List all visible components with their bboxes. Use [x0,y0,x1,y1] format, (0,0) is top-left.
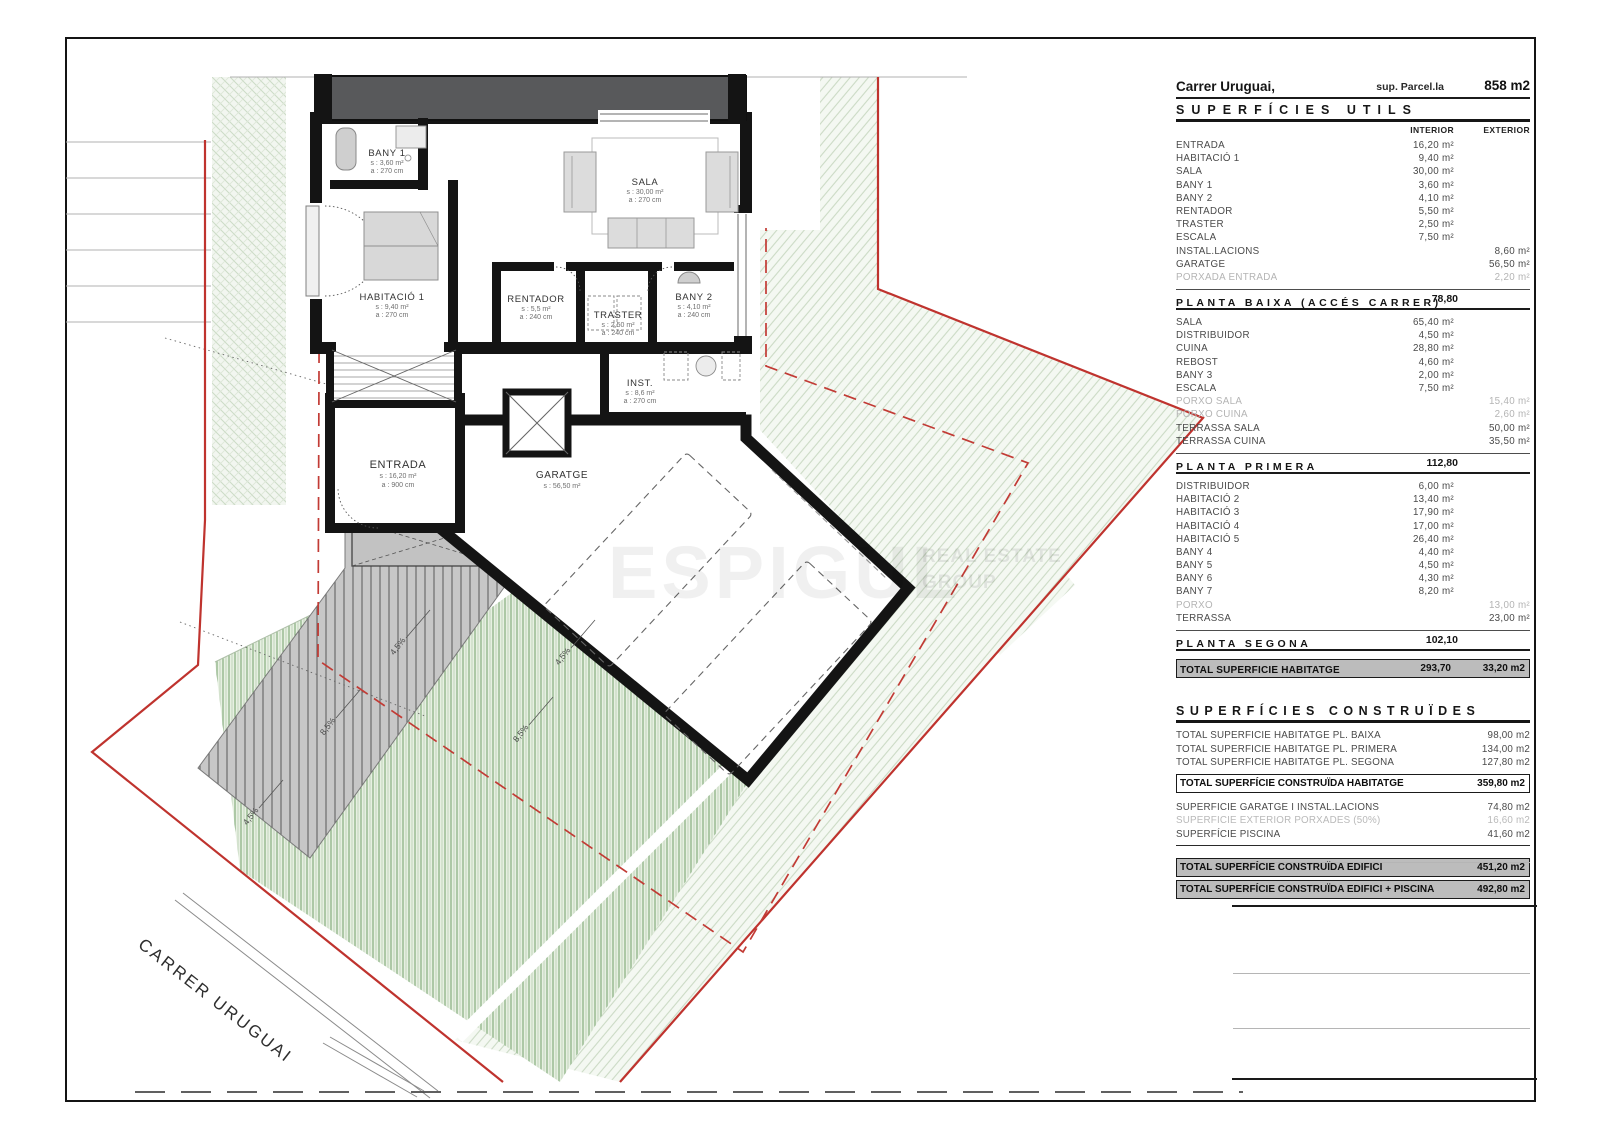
row-label: TOTAL SUPERFICIE HABITATGE PL. SEGONA [1176,757,1394,768]
row-interior-value: 17,90 m² [1413,506,1454,519]
row-exterior-value: 23,00 m² [1489,612,1530,625]
table-row: SUPERFÍCIE PISCINA41,60 m2 [1176,828,1530,842]
total-value: 492,80 m2 [1477,882,1525,897]
total-exterior: 33,20 m2 [1483,661,1525,676]
planta-subtotal-bar: PLANTA SEGONA102,10 [1176,630,1530,651]
row-label: PORXO [1176,599,1213,612]
table-row: SALA30,00 m² [1176,165,1530,178]
planta-value: 112,80 [1426,457,1458,469]
row-label: HABITACIÓ 3 [1176,506,1240,519]
row-interior-value: 9,40 m² [1419,152,1454,165]
construides-extra-rows: SUPERFICIE GARATGE I INSTAL.LACIONS74,80… [1176,801,1530,842]
unit [722,352,740,380]
room-label: BANY 2 [675,292,712,303]
row-label: REBOST [1176,356,1218,369]
table-row: TERRASSA23,00 m² [1176,612,1530,625]
row-label: BANY 7 [1176,585,1212,598]
row-interior-value: 5,50 m² [1419,205,1454,218]
table-row: CUINA28,80 m² [1176,342,1530,355]
row-interior-value: 4,10 m² [1419,192,1454,205]
row-value: 41,60 m2 [1488,828,1530,842]
row-interior-value: 30,00 m² [1413,165,1454,178]
table-row: BANY 44,40 m² [1176,546,1530,559]
total-habitatge-bar: TOTAL SUPERFICIE HABITATGE 293,70 33,20 … [1176,659,1530,678]
parcel-area-value: 858 m2 [1484,78,1530,93]
table-row: SALA65,40 m² [1176,316,1530,329]
total-label: TOTAL SUPERFICIE HABITATGE [1180,665,1340,676]
room-area: s : 2,50 m² [601,322,635,329]
table-row: BANY 32,00 m² [1176,369,1530,382]
planta-label: PLANTA BAIXA (ACCÉS CARRER) [1176,297,1442,309]
room-area: s : 16,20 m² [380,473,418,480]
section-title-utils: SUPERFÍCIES UTILS [1176,99,1530,122]
row-exterior-value: 13,00 m² [1489,599,1530,612]
row-label: BANY 2 [1176,192,1212,205]
watermark-brand: ESPIGUL [608,531,961,614]
row-interior-value: 16,20 m² [1413,139,1454,152]
row-label: CUINA [1176,342,1208,355]
room-height: a : 270 cm [371,168,404,175]
table-row: HABITACIÓ 317,90 m² [1176,506,1530,519]
ruled-line [1233,1028,1530,1029]
row-label: PORXADA ENTRADA [1176,271,1277,284]
table-row: INSTAL.LACIONS8,60 m² [1176,245,1530,258]
table-row: RENTADOR5,50 m² [1176,205,1530,218]
row-interior-value: 26,40 m² [1413,533,1454,546]
column-headers: INTERIOR EXTERIOR [1176,125,1530,139]
room-area: s : 3,60 m² [370,160,404,167]
row-interior-value: 4,50 m² [1419,559,1454,572]
row-value: 134,00 m2 [1482,743,1530,757]
row-label: BANY 5 [1176,559,1212,572]
table-row: GARATGE56,50 m² [1176,258,1530,271]
row-value: 127,80 m2 [1482,756,1530,770]
row-interior-value: 4,50 m² [1419,329,1454,342]
row-label: SUPERFÍCIE PISCINA [1176,829,1280,840]
room-area: s : 5,5 m² [521,306,551,313]
total-construida-habitatge: TOTAL SUPERFÍCIE CONSTRUÏDA HABITATGE 35… [1176,774,1530,793]
sink [396,126,426,148]
row-label: SALA [1176,165,1202,178]
row-interior-value: 65,40 m² [1413,316,1454,329]
planta-label: PLANTA PRIMERA [1176,461,1318,473]
row-interior-value: 28,80 m² [1413,342,1454,355]
room-label: BANY 1 [368,148,405,159]
row-label: PORXO SALA [1176,395,1242,408]
total-label: TOTAL SUPERFÍCIE CONSTRUÏDA EDIFICI + PI… [1180,884,1434,895]
table-row: BANY 64,30 m² [1176,572,1530,585]
row-label: TERRASSA CUINA [1176,435,1266,448]
row-label: BANY 4 [1176,546,1212,559]
ruled-line [1232,1078,1537,1080]
room-label: SALA [632,177,659,188]
table-row: BANY 54,50 m² [1176,559,1530,572]
planta-label: PLANTA SEGONA [1176,638,1311,650]
row-interior-value: 2,50 m² [1419,218,1454,231]
row-exterior-value: 56,50 m² [1489,258,1530,271]
planta-value: 78,80 [1432,293,1458,305]
utils-rows: ENTRADA16,20 m²HABITACIÓ 19,40 m²SALA30,… [1176,139,1530,651]
shaft [506,392,568,454]
row-label: BANY 3 [1176,369,1212,382]
row-exterior-value: 50,00 m² [1489,422,1530,435]
watermark-tagline: GROUP [922,572,997,593]
row-label: RENTADOR [1176,205,1233,218]
table-row: ESCALA7,50 m² [1176,382,1530,395]
row-label: TRASTER [1176,218,1224,231]
table-row: DISTRIBUIDOR6,00 m² [1176,480,1530,493]
row-label: SUPERFICIE EXTERIOR PORXADES (50%) [1176,815,1380,826]
row-interior-value: 6,00 m² [1419,480,1454,493]
row-value: 74,80 m2 [1488,801,1530,815]
ruled-line [1233,862,1530,863]
row-value: 16,60 m2 [1488,814,1530,828]
room-area: s : 30,00 m² [627,189,665,196]
grand-total-bar: TOTAL SUPERFÍCIE CONSTRUÏDA EDIFICI + PI… [1176,880,1530,899]
table-row: TERRASSA SALA50,00 m² [1176,422,1530,435]
table-row: HABITACIÓ 213,40 m² [1176,493,1530,506]
table-row: TOTAL SUPERFICIE HABITATGE PL. SEGONA127… [1176,756,1530,770]
row-label: TOTAL SUPERFICIE HABITATGE PL. BAIXA [1176,730,1381,741]
total-label: TOTAL SUPERFÍCIE CONSTRUÏDA HABITATGE [1180,778,1404,789]
table-row: PORXO SALA15,40 m² [1176,395,1530,408]
row-label: ENTRADA [1176,139,1225,152]
room-label: HABITACIÓ 1 [359,292,424,303]
construides-section: SUPERFÍCIES CONSTRUÏDES TOTAL SUPERFICIE… [1176,700,1530,899]
row-label: TOTAL SUPERFICIE HABITATGE PL. PRIMERA [1176,744,1397,755]
row-label: GARATGE [1176,258,1225,271]
row-interior-value: 7,50 m² [1419,231,1454,244]
row-interior-value: 3,60 m² [1419,179,1454,192]
watermark-tagline: REAL ESTATE [922,546,1062,567]
planta-subtotal-bar: PLANTA BAIXA (ACCÉS CARRER)78,80 [1176,289,1530,310]
table-row: PORXO CUINA2,60 m² [1176,408,1530,421]
final-totals: TOTAL SUPERFÍCIE CONSTRUÏDA EDIFICI451,2… [1176,858,1530,899]
row-exterior-value: 35,50 m² [1489,435,1530,448]
row-label: TERRASSA [1176,612,1231,625]
planta-value: 102,10 [1426,634,1458,646]
row-label: TERRASSA SALA [1176,422,1260,435]
col-exterior: EXTERIOR [1483,125,1530,135]
row-label: SALA [1176,316,1202,329]
street-name: Carrer Uruguai, [1176,79,1275,94]
table-row: SUPERFICIE EXTERIOR PORXADES (50%)16,60 … [1176,814,1530,828]
row-interior-value: 7,50 m² [1419,382,1454,395]
row-label: HABITACIÓ 2 [1176,493,1240,506]
room-label: TRASTER [594,310,643,321]
table-row: DISTRIBUIDOR4,50 m² [1176,329,1530,342]
row-exterior-value: 8,60 m² [1495,245,1530,258]
ruled-line [1232,905,1537,907]
room-height: a : 240 cm [678,312,711,319]
table-row: HABITACIÓ 417,00 m² [1176,520,1530,533]
table-row: ENTRADA16,20 m² [1176,139,1530,152]
row-interior-value: 4,60 m² [1419,356,1454,369]
row-interior-value: 8,20 m² [1419,585,1454,598]
room-label: RENTADOR [507,294,564,305]
boiler [664,352,688,380]
armchair [706,152,738,212]
table-row: REBOST4,60 m² [1176,356,1530,369]
table-row: TRASTER2,50 m² [1176,218,1530,231]
row-exterior-value: 2,20 m² [1495,271,1530,284]
table-row: BANY 24,10 m² [1176,192,1530,205]
total-value: 359,80 m2 [1477,776,1525,791]
room-area: s : 9,40 m² [375,304,409,311]
row-label: HABITACIÓ 5 [1176,533,1240,546]
row-interior-value: 4,40 m² [1419,546,1454,559]
row-label: DISTRIBUIDOR [1176,480,1250,493]
table-title-row: Carrer Uruguai, sup. Parcel.la 858 m2 [1176,78,1530,99]
table-row: TOTAL SUPERFICIE HABITATGE PL. PRIMERA13… [1176,743,1530,757]
street-label: CARRER URUGUAI [135,935,296,1067]
armchair [564,152,596,212]
table-row: BANY 13,60 m² [1176,179,1530,192]
row-label: HABITACIÓ 1 [1176,152,1240,165]
row-exterior-value: 15,40 m² [1489,395,1530,408]
room-height: a : 270 cm [376,312,409,319]
tank [696,356,716,376]
room-label: GARATGE [536,470,588,481]
parcel-label: sup. Parcel.la [1376,81,1444,93]
col-interior: INTERIOR [1410,125,1454,135]
room-area: s : 4,10 m² [677,304,711,311]
total-label: TOTAL SUPERFÍCIE CONSTRUÏDA EDIFICI [1180,862,1382,873]
surface-table: Carrer Uruguai, sup. Parcel.la 858 m2 SU… [1176,78,1530,902]
table-row: HABITACIÓ 19,40 m² [1176,152,1530,165]
table-row: TERRASSA CUINA35,50 m² [1176,435,1530,448]
section-title-construides: SUPERFÍCIES CONSTRUÏDES [1176,700,1530,723]
row-label: DISTRIBUIDOR [1176,329,1250,342]
table-row: PORXADA ENTRADA2,20 m² [1176,271,1530,284]
construides-rows: TOTAL SUPERFICIE HABITATGE PL. BAIXA98,0… [1176,729,1530,770]
row-label: INSTAL.LACIONS [1176,245,1260,258]
row-label: HABITACIÓ 4 [1176,520,1240,533]
table-row: PORXO13,00 m² [1176,599,1530,612]
room-height: a : 900 cm [382,482,415,489]
room-height: a : 240 cm [602,330,635,337]
table-row: TOTAL SUPERFICIE HABITATGE PL. BAIXA98,0… [1176,729,1530,743]
room-height: a : 270 cm [629,197,662,204]
row-label: BANY 1 [1176,179,1212,192]
row-label: BANY 6 [1176,572,1212,585]
room-height: a : 270 cm [624,398,657,405]
room-height: a : 240 cm [520,314,553,321]
total-interior: 293,70 [1420,661,1451,676]
table-row: HABITACIÓ 526,40 m² [1176,533,1530,546]
planta-subtotal-bar: PLANTA PRIMERA112,80 [1176,453,1530,474]
row-label: PORXO CUINA [1176,408,1248,421]
row-interior-value: 2,00 m² [1419,369,1454,382]
sofa [608,218,694,248]
room-area: s : 8,6 m² [625,390,655,397]
row-interior-value: 17,00 m² [1413,520,1454,533]
row-interior-value: 4,30 m² [1419,572,1454,585]
drawing-sheet: BANY 1 SALA HABITACIÓ 1 RENTADOR TRASTER… [0,0,1600,1131]
row-label: ESCALA [1176,382,1216,395]
room-label: INST. [627,378,653,389]
room-label: ENTRADA [370,459,427,471]
table-row: SUPERFICIE GARATGE I INSTAL.LACIONS74,80… [1176,801,1530,815]
bathtub [336,128,356,170]
row-exterior-value: 2,60 m² [1495,408,1530,421]
table-row: ESCALA7,50 m² [1176,231,1530,244]
row-value: 98,00 m2 [1488,729,1530,743]
row-label: ESCALA [1176,231,1216,244]
table-row: BANY 78,20 m² [1176,585,1530,598]
ruled-line [1233,973,1530,974]
room-area: s : 56,50 m² [544,483,582,490]
row-label: SUPERFICIE GARATGE I INSTAL.LACIONS [1176,802,1379,813]
row-interior-value: 13,40 m² [1413,493,1454,506]
grand-total-bar: TOTAL SUPERFÍCIE CONSTRUÏDA EDIFICI451,2… [1176,858,1530,877]
